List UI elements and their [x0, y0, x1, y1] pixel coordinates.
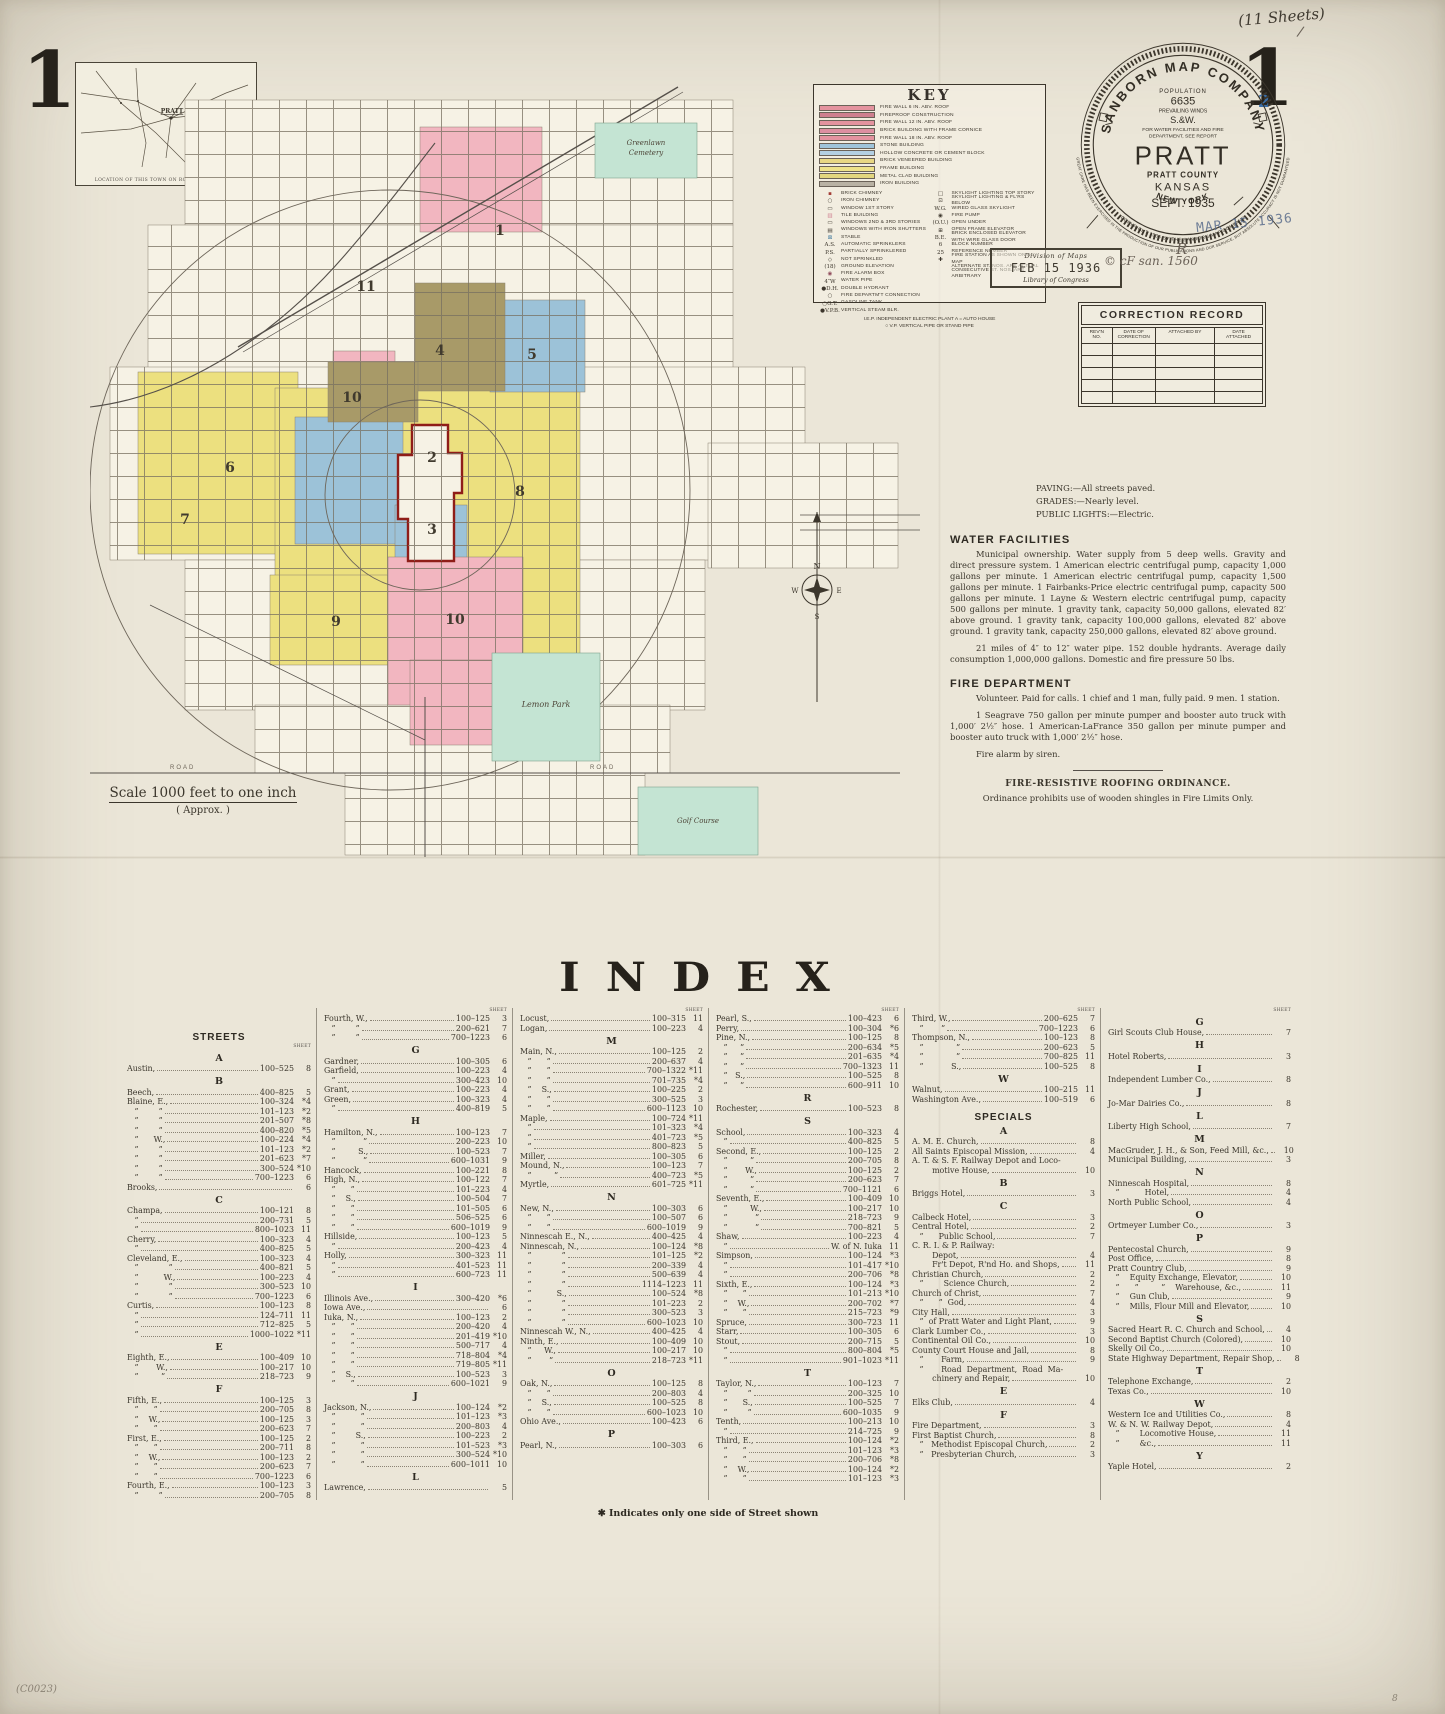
key-stack-entry: HOLLOW CONCRETE OR CEMENT BLOCK [819, 150, 1040, 158]
index-letter-heading: E [127, 1342, 311, 1353]
index-entry: Beech,400–8255 [127, 1088, 311, 1098]
index-entry: Maple,100–724*11 [520, 1114, 703, 1124]
index-entry: ” ”200–7118 [127, 1443, 311, 1453]
legend-symbol-icon: ⊞ [930, 228, 952, 234]
index-entry: ” ”200–4204 [324, 1322, 507, 1332]
fire-department-paragraph-1: Volunteer. Paid for calls. 1 chief and 1… [950, 693, 1286, 704]
index-entry: ” S.,100–524*8 [520, 1289, 703, 1299]
district-number: 3 [427, 522, 437, 538]
index-entry: Thompson, N.,100–1238 [912, 1033, 1095, 1043]
seal-winds-label: PREVAILING WINDS [1159, 109, 1208, 115]
library-of-congress-stamp: Division of Maps FEB 15 1936 Library of … [990, 248, 1122, 288]
index-entry: Fourth, E.,100–1233 [127, 1481, 311, 1491]
municipal-info: PAVING:—All streets paved. GRADES:—Nearl… [950, 482, 1286, 810]
index-entry: ” ”201–623*7 [127, 1154, 311, 1164]
index-entry: ” ”101–2234 [324, 1185, 507, 1195]
legend-symbol-icon: ▥ [819, 213, 841, 219]
key-stack-entry: FIRE WALL 18 IN. ABV. ROOF [819, 134, 1040, 142]
scale-note: Scale 1000 feet to one inch ( Approx. ) [98, 782, 308, 816]
index-entry: First, E.,100–1252 [127, 1434, 311, 1444]
index-entry: ” ”600–91110 [716, 1081, 899, 1091]
index-entry: chinery and Repair,10 [912, 1374, 1095, 1384]
fire-department-paragraph-2: 1 Seagrave 750 gallon per minute pumper … [950, 710, 1286, 743]
index-entry: Holly,300–32311 [324, 1251, 507, 1261]
index-column: SHEETFourth, W.,100–1253 ” ”200–6217 ” ”… [316, 1008, 512, 1500]
construction-color-swatch [819, 105, 875, 111]
index-entry: ” S.,100–5237 [324, 1147, 507, 1157]
index-entry: ” Locomotive House,11 [1108, 1429, 1291, 1439]
index-entry: ” W.,200–702*7 [716, 1299, 899, 1309]
seal-report-note-2: DEPARTMENT, SEE REPORT [1149, 134, 1217, 140]
index-entry: ”101–323*4 [520, 1123, 703, 1133]
index-entry: Fr't Depot, R'nd Ho. and Shops,11 [912, 1260, 1095, 1270]
index-entry: ”800–102311 [127, 1225, 311, 1235]
index-entry: ” ”200–6237 [127, 1424, 311, 1434]
legend-symbol-icon: ⊠ [819, 235, 841, 241]
golf-course-label: Golf Course [677, 817, 719, 825]
legend-symbol-icon: ○G.T. [819, 301, 841, 307]
index-entry: Third, E.,100–124*2 [716, 1436, 899, 1446]
index-entry: Yaple Hotel,2 [1108, 1462, 1291, 1472]
index-entry: Garfield,100–2234 [324, 1066, 507, 1076]
index-entry: Ninnescah W., N.,400–4254 [520, 1327, 703, 1337]
index-entry: ” ”101–125*2 [520, 1251, 703, 1261]
loc-stamp-division: Division of Maps [996, 252, 1116, 260]
index-entry: ” Presbyterian Church,3 [912, 1450, 1095, 1460]
district-number: 8 [515, 484, 525, 500]
key-symbol-entry: ▭WINDOWS 2ND & 3RD STORIES [819, 220, 930, 227]
correction-empty-row [1082, 368, 1262, 380]
index-entry: ” Science Church,2 [912, 1279, 1095, 1289]
index-letter-heading: E [912, 1386, 1095, 1397]
index-entry: ” ”300–5233 [520, 1308, 703, 1318]
compass-e: E [836, 587, 841, 595]
district-number: 4 [435, 343, 445, 359]
index-entry: ” ”700–8215 [716, 1223, 899, 1233]
index-entry: ” ”200–7058 [127, 1491, 311, 1501]
scale-text: Scale 1000 feet to one inch [109, 785, 296, 803]
index-entry: ” ”200–706*8 [716, 1455, 899, 1465]
construction-color-swatch [819, 181, 875, 187]
legend-symbol-icon: ◉ [819, 271, 841, 277]
index-entry: Main, N.,100–1252 [520, 1047, 703, 1057]
index-entry: Eighth, E.,100–40910 [127, 1353, 311, 1363]
index-entry: ”400–8255 [127, 1244, 311, 1254]
index-column: SHEETGGirl Scouts Club House,7HHotel Rob… [1100, 1008, 1296, 1500]
legend-symbol-icon: W.G. [930, 206, 952, 212]
key-stack-entry: FIRE WALL 6 IN. ABV. ROOF [819, 104, 1040, 112]
index-letter-heading: P [520, 1429, 703, 1440]
index-entry: Skelly Oil Co.,10 [1108, 1344, 1291, 1354]
index-entry: ” Mills, Flour Mill and Elevator,10 [1108, 1302, 1291, 1312]
index-entry: ” W.,100–1253 [127, 1415, 311, 1425]
index-entry: ” ” God,4 [912, 1298, 1095, 1308]
index-entry: Perry,100–304*6 [716, 1024, 899, 1034]
index-entry: Gardner,100–3056 [324, 1057, 507, 1067]
compass-n: N [814, 562, 821, 571]
index-entry: ” of Pratt Water and Light Plant,9 [912, 1317, 1095, 1327]
index-entry: Grant,100–2234 [324, 1085, 507, 1095]
sheet-column-label: SHEET [1108, 1008, 1291, 1014]
index-entry: ” ”700–12236 [127, 1173, 311, 1183]
index-entry: ”1000–1022*11 [127, 1330, 311, 1340]
legend-symbol-icon: ▭ [819, 206, 841, 212]
key-stack-entry: IRON BUILDING [819, 180, 1040, 188]
index-entry: ” ”101–2232 [520, 1299, 703, 1309]
index-entry: MacGruder, J. H., & Son, Feed Mill, &c.,… [1108, 1146, 1291, 1156]
index-entry: Tenth,100–21310 [716, 1417, 899, 1427]
construction-color-swatch [819, 120, 875, 126]
index-entry: Spruce,300–72311 [716, 1318, 899, 1328]
index-entry: ” W.,100–1232 [127, 1453, 311, 1463]
index-entry: Hamilton, N.,100–1237 [324, 1128, 507, 1138]
index-entry: Second Baptist Church (Colored),10 [1108, 1335, 1291, 1345]
index-letter-heading: O [1108, 1210, 1291, 1221]
index-column: SHEETThird, W.,200–6257 ” ”700–12236Thom… [904, 1008, 1100, 1500]
index-entry: Pearl, N.,100–3036 [520, 1441, 703, 1451]
index-letter-heading: J [1108, 1087, 1291, 1098]
index-entry: Shaw,100–2234 [716, 1232, 899, 1242]
index-entry: ” ”200–6235 [912, 1043, 1095, 1053]
index-entry: Ninth, E.,100–40910 [520, 1337, 703, 1347]
index-entry: Ortmeyer Lumber Co.,3 [1108, 1221, 1291, 1231]
index-entry: ” ”200–6237 [127, 1462, 311, 1472]
index-entry: ” ”701–735*4 [520, 1076, 703, 1086]
index-entry: ” W.,100–21710 [716, 1204, 899, 1214]
district-number: 10 [445, 612, 465, 628]
key-symbol-entry: ●D.H.DOUBLE HYDRANT [819, 285, 930, 292]
index-entry: Iowa Ave.,6 [324, 1303, 507, 1313]
index-entry: ”712–8255 [127, 1320, 311, 1330]
construction-color-swatch [819, 158, 875, 164]
index-letter-heading: J [324, 1391, 507, 1402]
key-symbol-entry: ○G.T.GASOLINE TANK [819, 300, 930, 307]
index-letter-heading: H [1108, 1040, 1291, 1051]
water-facilities-heading: WATER FACILITIES [950, 535, 1286, 546]
index-entry: Simpson,100–124*3 [716, 1251, 899, 1261]
legend-symbol-icon: (O.U.) [930, 220, 952, 226]
index-entry: ” W.,100–124*2 [716, 1465, 899, 1475]
index-entry: ” ”600–10319 [324, 1156, 507, 1166]
correction-col-header: ATTACHED BY [1156, 328, 1215, 344]
construction-color-swatch [819, 135, 875, 141]
sheet-column-label: SHEET [127, 1044, 311, 1050]
index-entry: ”800–8235 [520, 1142, 703, 1152]
key-stack-entry: STONE BUILDING [819, 142, 1040, 150]
index-entry: ” Public School,7 [912, 1232, 1095, 1242]
index-section-title: SPECIALS [912, 1112, 1095, 1123]
index-entry: Jo-Mar Dairies Co.,8 [1108, 1099, 1291, 1109]
index-entry: Blaine, E.,100–324*4 [127, 1097, 311, 1107]
index-entry: Austin,100–5258 [127, 1064, 311, 1074]
index-entry: ” ”200–22310 [324, 1137, 507, 1147]
index-letter-heading: I [1108, 1064, 1291, 1075]
public-lights-note: PUBLIC LIGHTS:—Electric. [1036, 508, 1286, 521]
district-number: 9 [331, 614, 341, 630]
key-symbol-entry: ○FIRE DEPARTM'T CONNECTION [819, 293, 930, 300]
index-entry: All Saints Episcopal Mission,4 [912, 1147, 1095, 1157]
stray-pen-mark: / [1296, 24, 1305, 41]
seal-county: PRATT COUNTY [1147, 170, 1219, 179]
index-entry: ” ”700–12236 [127, 1472, 311, 1482]
index-entry: ” ”101–123*2 [127, 1107, 311, 1117]
index-entry: ”200–7315 [127, 1216, 311, 1226]
legend-symbol-icon: (18) [819, 264, 841, 270]
index-letter-heading: P [1108, 1233, 1291, 1244]
road-label-1: ROAD [170, 765, 195, 771]
legend-symbol-icon: 6 [930, 242, 952, 248]
index-entry: Christian Church,2 [912, 1270, 1095, 1280]
key-symbol-entry: 4″WWATER PIPE [819, 278, 930, 285]
index-entry: Illinois Ave.,300–420*6 [324, 1294, 507, 1304]
index-entry: ” ”218–723*11 [520, 1356, 703, 1366]
legend-symbol-icon: ▤ [819, 228, 841, 234]
index-entry: Fourth, W.,100–1253 [324, 1014, 507, 1024]
ordinance-divider [1073, 770, 1163, 771]
index-entry: Pearl, S.,100–4236 [716, 1014, 899, 1024]
index-entry: Ninnescah, N.,100–124*8 [520, 1242, 703, 1252]
key-stack: FIRE WALL 6 IN. ABV. ROOFFIREPROOF CONST… [819, 104, 1040, 188]
index-letter-heading: C [127, 1195, 311, 1206]
key-symbol-entry: ◉FIRE ALARM BOX [819, 271, 930, 278]
index-entry: ” ”600–102310 [520, 1408, 703, 1418]
legend-symbol-icon: □ [930, 191, 952, 197]
index-entry: ” ”506–5256 [324, 1213, 507, 1223]
district-number: 5 [527, 347, 537, 363]
index-entry: ” ”200–7058 [127, 1405, 311, 1415]
index-entry: ” S.,100–5047 [324, 1194, 507, 1204]
sheet-number-left: 1 [22, 42, 76, 120]
district-number: 6 [225, 460, 235, 476]
index-entry: ” ”400–8215 [127, 1263, 311, 1273]
legend-symbol-icon: ○ [819, 293, 841, 299]
index-entry: Ninnescah Hospital,8 [1108, 1179, 1291, 1189]
cemetery-label-1: Greenlawn [627, 139, 666, 147]
index-entry: Central Hotel,2 [912, 1222, 1095, 1232]
index-entry: Hillside,100–1235 [324, 1232, 507, 1242]
index-entry: Champa,100–1218 [127, 1206, 311, 1216]
index-entry: County Court House and Jail,8 [912, 1346, 1095, 1356]
index-entry: ” ”700–12236 [912, 1024, 1095, 1034]
legend-symbol-icon: 4″W [819, 279, 841, 285]
correction-record-title: CORRECTION RECORD [1081, 305, 1263, 325]
index-entry: ” ”218–7239 [127, 1372, 311, 1382]
index-entry: ” ”100–5076 [520, 1213, 703, 1223]
sheets-count-note: (11 Sheets) [1237, 4, 1325, 30]
index-letter-heading: S [1108, 1314, 1291, 1325]
index-entry: ” ”200–3394 [520, 1261, 703, 1271]
key-symbol-entry: ▭WINDOW 1ST STORY [819, 205, 930, 212]
paving-note: PAVING:—All streets paved. [1036, 482, 1286, 495]
index-entry: Fire Department,3 [912, 1421, 1095, 1431]
seal-population-label: POPULATION [1159, 89, 1206, 95]
legend-symbol-icon: A.S. [819, 242, 841, 248]
key-symbol-entry: ◉FIRE PUMP [930, 212, 1041, 219]
index-entry: Hancock,100–2218 [324, 1166, 507, 1176]
correction-empty-row [1082, 356, 1262, 368]
index-entry: ” ”200–8034 [520, 1389, 703, 1399]
seal-state: KANSAS [1155, 181, 1211, 193]
index-entry: ” ”101–5056 [324, 1204, 507, 1214]
index-entry: High, N.,100–1227 [324, 1175, 507, 1185]
corner-pencil-mark: 8 [1392, 1694, 1398, 1704]
water-facilities-paragraph-2: 21 miles of 4″ to 12″ water pipe. 152 do… [950, 643, 1286, 665]
index-entry: ” ”201–419*10 [324, 1332, 507, 1342]
key-stack-entry: FIRE WALL 12 IN. ABV. ROOF [819, 119, 1040, 127]
index-entry: ” Gun Club,9 [1108, 1292, 1291, 1302]
seal-report-note-1: FOR WATER FACILITIES AND FIRE [1142, 127, 1224, 133]
index-entry: ” ”200–6237 [716, 1175, 899, 1185]
lemon-park-label: Lemon Park [521, 700, 571, 709]
index-entry: ” ”300–5253 [520, 1095, 703, 1105]
index-entry: ” ”700–1322*11 [520, 1066, 703, 1076]
index-entry: ” ”200–6374 [520, 1057, 703, 1067]
index-entry: ” ”600–10359 [716, 1408, 899, 1418]
index-entry: Sacred Heart R. C. Church and School,4 [1108, 1325, 1291, 1335]
index-entry: ” S.,100–5233 [324, 1370, 507, 1380]
index-entry: Locust,100–31511 [520, 1014, 703, 1024]
index-entry: Cleveland, E.,100–3234 [127, 1254, 311, 1264]
correction-record: CORRECTION RECORD REV'N NO.DATE OF CORRE… [1078, 302, 1266, 407]
index-entry: ”300–42310 [324, 1076, 507, 1086]
index-entry: Independent Lumber Co.,8 [1108, 1075, 1291, 1085]
index-entry: ” S.,100–5257 [716, 1398, 899, 1408]
construction-color-swatch [819, 128, 875, 134]
key-symbol-entry: (O.U.)OPEN UNDER [930, 220, 1041, 227]
key-symbol-entry: ▤WINDOWS WITH IRON SHUTTERS [819, 227, 930, 234]
compass-s: S [815, 613, 820, 621]
index-entry: Sixth, E.,100–124*3 [716, 1280, 899, 1290]
district-number: 2 [427, 450, 437, 466]
index-entry: First Baptist Church,8 [912, 1431, 1095, 1441]
index-entry: ” S.,100–5258 [716, 1071, 899, 1081]
index-entry: A. M. E. Church,8 [912, 1137, 1095, 1147]
index-entry: ” Farm,9 [912, 1355, 1095, 1365]
index-entry: Texas Co.,10 [1108, 1387, 1291, 1397]
index-entry-continuation: C. R. I. & P. Railway: [912, 1241, 1095, 1251]
index-entry: Brooks,6 [127, 1183, 311, 1193]
index-entry: School,100–3234 [716, 1128, 899, 1138]
index-entry: Logan,100–2234 [520, 1024, 703, 1034]
index-letter-heading: B [127, 1076, 311, 1087]
index-entry: ” ”700–11216 [716, 1185, 899, 1195]
index-entry: ” ”500–7174 [324, 1341, 507, 1351]
index-entry: Cherry,100–3234 [127, 1235, 311, 1245]
index-entry: Western Ice and Utilities Co.,8 [1108, 1410, 1291, 1420]
index-entry: ” ”201–507*8 [127, 1116, 311, 1126]
legend-symbol-icon: 25 [930, 250, 952, 256]
index-entry: Continental Oil Co.,10 [912, 1336, 1095, 1346]
index-entry: ”200–706*8 [716, 1270, 899, 1280]
index-entry: Pentecostal Church,9 [1108, 1245, 1291, 1255]
index-entry: ” ”101–123*3 [324, 1412, 507, 1422]
district-number: 10 [342, 390, 362, 406]
index-entry: Pine, N.,100–1258 [716, 1033, 899, 1043]
index-letter-heading: Y [1108, 1451, 1291, 1462]
legend-symbol-icon: ○ [819, 198, 841, 204]
index-entry: Mound, N.,100–1237 [520, 1161, 703, 1171]
index-entry: Rochester,100–5238 [716, 1104, 899, 1114]
index-entry: ” W.,100–21710 [520, 1346, 703, 1356]
sanborn-map-sheet: 1 1 (11 Sheets) 2 / PRATT LOCATION OF TH… [0, 0, 1445, 1714]
index-entry: ” ”101–123*3 [716, 1446, 899, 1456]
index-entry: ”124–71111 [127, 1311, 311, 1321]
index-entry: Fifth, E.,100–1253 [127, 1396, 311, 1406]
index-letter-heading: N [520, 1192, 703, 1203]
district-number: 1 [495, 223, 505, 239]
index-entry: ” ”1114–122311 [520, 1280, 703, 1290]
index-entry: ” ”719–805*11 [324, 1360, 507, 1370]
index-entry: ” W.,100–1252 [716, 1166, 899, 1176]
key-symbol-entry: A.S.AUTOMATIC SPRINKLERS [819, 242, 930, 249]
key-stack-entry: BRICK VENEERED BUILDING [819, 157, 1040, 165]
index-letter-heading: W [1108, 1399, 1291, 1410]
index-letter-heading: R [716, 1093, 899, 1104]
index-entry: Elks Club,4 [912, 1398, 1095, 1408]
index-entry: ” ”718–804*4 [324, 1351, 507, 1361]
index-entry: ” Hotel,4 [1108, 1188, 1291, 1198]
correction-empty-row [1082, 344, 1262, 356]
index-entry: ” S.,100–5258 [520, 1398, 703, 1408]
correction-col-header: DATE OF CORRECTION [1113, 328, 1156, 344]
index-entry: Third, W.,200–6257 [912, 1014, 1095, 1024]
index-letter-heading: M [520, 1036, 703, 1047]
index-entry: ” ”400–723*5 [520, 1171, 703, 1181]
index-entry: motive House,10 [912, 1166, 1095, 1176]
correction-table-head: REV'N NO.DATE OF CORRECTIONATTACHED BYDA… [1082, 328, 1262, 344]
index-entry: ”800–804*5 [716, 1346, 899, 1356]
scale-approx: ( Approx. ) [98, 805, 308, 816]
index-entry: Stout,200–7155 [716, 1337, 899, 1347]
index-entry: ” Methodist Episcopal Church,2 [912, 1440, 1095, 1450]
index-entry: ”W. of N. Iuka11 [716, 1242, 899, 1252]
index-entry: ” ”200–32510 [716, 1389, 899, 1399]
index-entry: ”400–8195 [324, 1104, 507, 1114]
key-footer: I.E.P. INDEPENDENT ELECTRIC PLANT A = AU… [819, 317, 1040, 329]
index-letter-heading: F [912, 1410, 1095, 1421]
index-entry: ”214–7259 [716, 1427, 899, 1437]
index-entry-continuation: ” Road Department, Road Ma- [912, 1365, 1095, 1375]
fire-department-heading: FIRE DEPARTMENT [950, 679, 1286, 690]
index-entry: ” ”200–634*5 [716, 1043, 899, 1053]
index-entry: ” Equity Exchange, Elevator,10 [1108, 1273, 1291, 1283]
index-letter-heading: A [127, 1053, 311, 1064]
index-letter-heading: F [127, 1384, 311, 1395]
correction-empty-row [1082, 380, 1262, 392]
index-entry: ” W.,100–224*4 [127, 1135, 311, 1145]
index-entry: Calbeck Hotel,3 [912, 1213, 1095, 1223]
seal-population: 6635 [1171, 95, 1196, 107]
index-entry: ” ”500–6394 [520, 1270, 703, 1280]
roofing-ordinance-text: Ordinance prohibits use of wooden shingl… [950, 793, 1286, 804]
legend-symbol-icon: ◇ [819, 257, 841, 263]
index-entry-continuation: A. T. & S. F. Railway Depot and Loco- [912, 1156, 1095, 1166]
index-column: SHEETLocust,100–31511Logan,100–2234MMain… [512, 1008, 708, 1500]
index-entry: ” ”700–82511 [912, 1052, 1095, 1062]
index-entry: Green,100–3234 [324, 1095, 507, 1105]
index-entry: ” ”400–820*5 [127, 1126, 311, 1136]
key-symbol-entry: ▥TILE BUILDING [819, 212, 930, 219]
index-entry: ” ”300–524*10 [324, 1450, 507, 1460]
index-entry: Girl Scouts Club House,7 [1108, 1028, 1291, 1038]
index-letter-heading: B [912, 1178, 1095, 1189]
index-entry: ” S.,100–2252 [520, 1085, 703, 1095]
key-stack-entry: METAL CLAD BUILDING [819, 172, 1040, 180]
index-column: SHEETPearl, S.,100–4236Perry,100–304*6Pi… [708, 1008, 904, 1500]
construction-color-swatch [819, 112, 875, 118]
index-entry: City Hall,3 [912, 1308, 1095, 1318]
pencil-note: (C0023) [16, 1684, 57, 1695]
